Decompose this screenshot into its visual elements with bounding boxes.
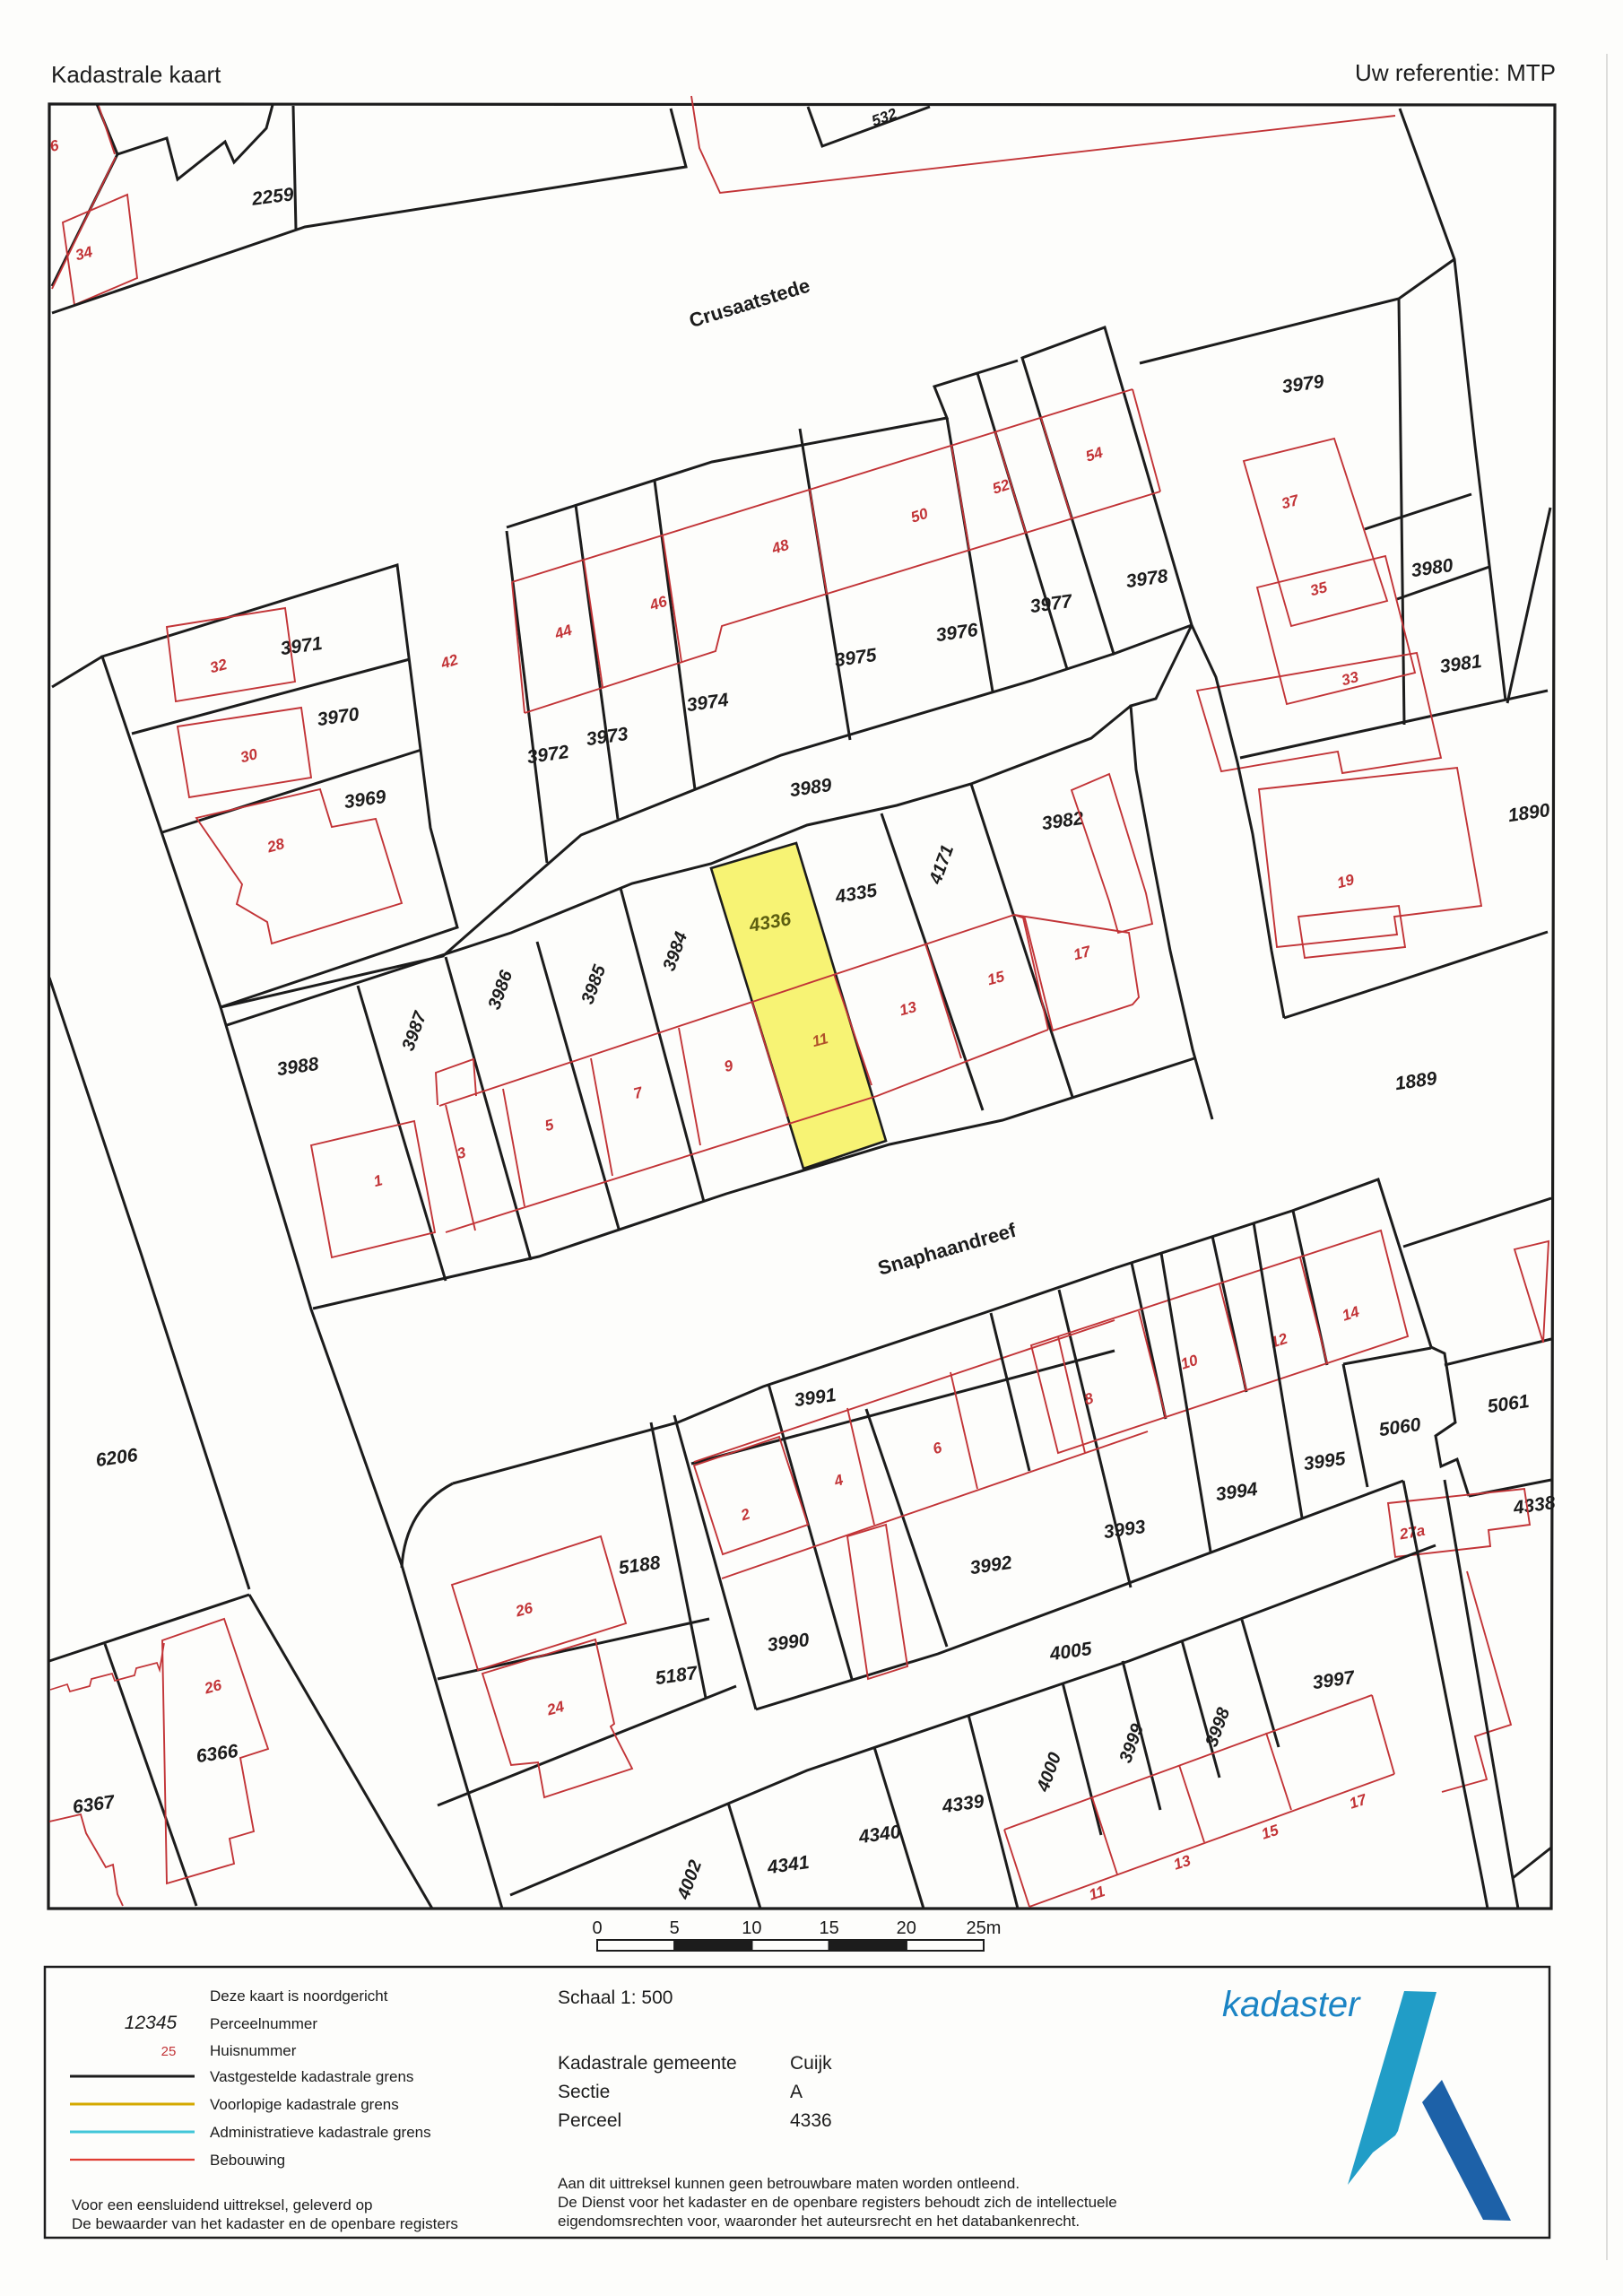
svg-text:Sectie: Sectie bbox=[558, 2082, 610, 2102]
svg-text:6206: 6206 bbox=[94, 1445, 139, 1471]
svg-text:5061: 5061 bbox=[1486, 1391, 1530, 1417]
svg-text:3977: 3977 bbox=[1028, 591, 1074, 617]
svg-text:kadaster: kadaster bbox=[1222, 1985, 1361, 2024]
svg-text:5: 5 bbox=[543, 1116, 557, 1135]
svg-text:5187: 5187 bbox=[654, 1663, 699, 1689]
svg-text:4338: 4338 bbox=[1511, 1492, 1557, 1518]
svg-text:10: 10 bbox=[742, 1918, 761, 1938]
svg-text:24: 24 bbox=[544, 1698, 567, 1719]
svg-text:4005: 4005 bbox=[1047, 1639, 1093, 1665]
svg-text:Vastgestelde kadastrale grens: Vastgestelde kadastrale grens bbox=[210, 2068, 413, 2085]
svg-text:5188: 5188 bbox=[617, 1552, 662, 1578]
svg-text:2: 2 bbox=[738, 1505, 752, 1524]
svg-text:1889: 1889 bbox=[1393, 1068, 1438, 1094]
svg-text:50: 50 bbox=[908, 505, 930, 526]
svg-text:3990: 3990 bbox=[766, 1630, 811, 1656]
svg-text:3976: 3976 bbox=[934, 620, 979, 646]
svg-text:15: 15 bbox=[985, 968, 1007, 988]
svg-text:3991: 3991 bbox=[793, 1385, 837, 1411]
svg-text:3995: 3995 bbox=[1302, 1448, 1347, 1474]
svg-text:Aan dit uittreksel kunnen geen: Aan dit uittreksel kunnen geen betrouwba… bbox=[558, 2175, 1020, 2192]
svg-text:4340: 4340 bbox=[856, 1822, 902, 1848]
svg-text:3988: 3988 bbox=[275, 1054, 320, 1080]
svg-text:Kadastrale gemeente: Kadastrale gemeente bbox=[558, 2053, 737, 2074]
svg-text:11: 11 bbox=[1087, 1883, 1107, 1904]
svg-text:3974: 3974 bbox=[685, 690, 730, 716]
svg-text:3989: 3989 bbox=[788, 775, 833, 801]
svg-text:5060: 5060 bbox=[1377, 1414, 1422, 1440]
svg-text:6: 6 bbox=[931, 1439, 944, 1457]
svg-text:3984: 3984 bbox=[659, 929, 691, 973]
svg-text:46: 46 bbox=[647, 593, 669, 614]
svg-text:0: 0 bbox=[592, 1918, 602, 1938]
svg-text:eigendomsrechten voor, waarond: eigendomsrechten voor, waaronder het aut… bbox=[558, 2213, 1080, 2230]
svg-text:2259: 2259 bbox=[250, 184, 295, 210]
svg-text:4335: 4335 bbox=[833, 880, 879, 908]
svg-text:1: 1 bbox=[372, 1171, 385, 1190]
svg-text:7: 7 bbox=[632, 1083, 647, 1102]
svg-text:3992: 3992 bbox=[968, 1552, 1013, 1578]
svg-text:Uw referentie: MTP: Uw referentie: MTP bbox=[1355, 59, 1556, 86]
svg-text:3969: 3969 bbox=[343, 787, 387, 813]
svg-text:Schaal 1: 500: Schaal 1: 500 bbox=[558, 1987, 673, 2008]
svg-text:12345: 12345 bbox=[125, 2013, 178, 2033]
svg-text:Bebouwing: Bebouwing bbox=[210, 2152, 285, 2169]
svg-text:26: 26 bbox=[513, 1599, 535, 1621]
svg-text:19: 19 bbox=[1335, 871, 1357, 891]
svg-text:4000: 4000 bbox=[1033, 1750, 1065, 1795]
svg-text:32: 32 bbox=[208, 656, 230, 676]
svg-text:34: 34 bbox=[74, 243, 95, 264]
svg-text:13: 13 bbox=[1171, 1852, 1193, 1874]
svg-text:15: 15 bbox=[819, 1918, 838, 1938]
svg-text:13: 13 bbox=[898, 998, 919, 1019]
svg-text:35: 35 bbox=[1308, 578, 1330, 599]
svg-text:Huisnummer: Huisnummer bbox=[210, 2042, 297, 2059]
svg-text:30: 30 bbox=[239, 745, 260, 766]
svg-text:3979: 3979 bbox=[1280, 371, 1325, 397]
svg-text:A: A bbox=[790, 2082, 803, 2102]
svg-text:10: 10 bbox=[1178, 1352, 1200, 1373]
svg-text:4341: 4341 bbox=[765, 1852, 810, 1878]
svg-text:6367: 6367 bbox=[71, 1791, 117, 1817]
svg-text:17: 17 bbox=[1072, 943, 1094, 964]
svg-text:3993: 3993 bbox=[1102, 1517, 1147, 1543]
svg-text:37: 37 bbox=[1280, 491, 1302, 513]
svg-text:Perceel: Perceel bbox=[558, 2110, 621, 2131]
svg-text:3985: 3985 bbox=[577, 961, 610, 1006]
svg-text:3978: 3978 bbox=[1124, 566, 1169, 592]
svg-text:20: 20 bbox=[897, 1918, 916, 1938]
svg-text:De bewaarder van het kadaster: De bewaarder van het kadaster en de open… bbox=[72, 2215, 458, 2232]
svg-text:3975: 3975 bbox=[833, 645, 878, 671]
svg-text:3971: 3971 bbox=[279, 633, 323, 659]
svg-text:Deze kaart is noordgericht: Deze kaart is noordgericht bbox=[210, 1987, 388, 2005]
svg-text:Cuijk: Cuijk bbox=[790, 2053, 832, 2074]
svg-text:Kadastrale kaart: Kadastrale kaart bbox=[51, 61, 221, 88]
svg-text:4002: 4002 bbox=[673, 1857, 706, 1902]
svg-text:25: 25 bbox=[161, 2044, 177, 2059]
svg-text:Administratieve kadastrale gre: Administratieve kadastrale grens bbox=[210, 2124, 431, 2141]
svg-text:54: 54 bbox=[1083, 444, 1105, 465]
svg-text:Voor een eensluidend uittrekse: Voor een eensluidend uittreksel, gelever… bbox=[72, 2196, 373, 2213]
svg-text:1890: 1890 bbox=[1506, 800, 1551, 826]
svg-text:Voorlopige kadastrale grens: Voorlopige kadastrale grens bbox=[210, 2096, 399, 2113]
svg-text:532: 532 bbox=[870, 105, 900, 130]
svg-text:5: 5 bbox=[670, 1918, 680, 1938]
svg-text:3997: 3997 bbox=[1311, 1667, 1357, 1693]
svg-text:14: 14 bbox=[1340, 1303, 1361, 1325]
svg-text:3986: 3986 bbox=[484, 967, 516, 1012]
svg-text:4339: 4339 bbox=[940, 1791, 985, 1817]
svg-text:3994: 3994 bbox=[1214, 1479, 1259, 1505]
svg-text:Crusaatstede: Crusaatstede bbox=[687, 274, 813, 332]
svg-text:26: 26 bbox=[202, 1676, 224, 1698]
svg-text:48: 48 bbox=[768, 536, 791, 558]
svg-text:15: 15 bbox=[1259, 1822, 1280, 1843]
svg-text:9: 9 bbox=[723, 1057, 736, 1075]
svg-text:6366: 6366 bbox=[195, 1741, 239, 1767]
svg-text:3980: 3980 bbox=[1410, 555, 1454, 581]
svg-text:3998: 3998 bbox=[1202, 1704, 1234, 1749]
svg-text:44: 44 bbox=[551, 622, 574, 643]
svg-text:Perceelnummer: Perceelnummer bbox=[210, 2015, 317, 2032]
svg-text:3973: 3973 bbox=[585, 724, 629, 750]
svg-text:4336: 4336 bbox=[790, 2110, 832, 2131]
svg-text:3970: 3970 bbox=[316, 704, 360, 730]
svg-text:4171: 4171 bbox=[925, 842, 958, 887]
svg-text:3987: 3987 bbox=[398, 1008, 430, 1053]
svg-text:28: 28 bbox=[265, 835, 287, 857]
svg-text:8: 8 bbox=[1082, 1389, 1096, 1408]
svg-text:3: 3 bbox=[456, 1144, 469, 1162]
svg-text:De Dienst voor het kadaster en: De Dienst voor het kadaster en de openba… bbox=[558, 2194, 1117, 2211]
svg-text:25m: 25m bbox=[967, 1918, 1002, 1938]
svg-text:17: 17 bbox=[1347, 1790, 1369, 1812]
svg-text:4: 4 bbox=[831, 1471, 846, 1490]
svg-text:Snaphaandreef: Snaphaandreef bbox=[875, 1219, 1019, 1280]
svg-text:3981: 3981 bbox=[1438, 651, 1482, 677]
svg-text:42: 42 bbox=[438, 651, 460, 673]
